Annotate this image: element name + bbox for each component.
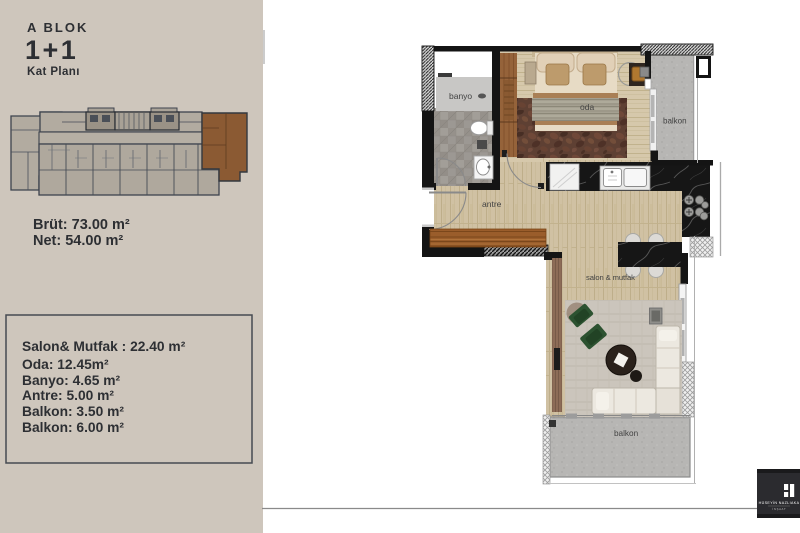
svg-text:Banyo: 4.65 m²: Banyo: 4.65 m² xyxy=(22,373,121,388)
svg-text:antre: antre xyxy=(482,199,502,209)
svg-text:Oda: 12.45m²: Oda: 12.45m² xyxy=(22,357,109,372)
svg-text:Antre: 5.00 m²: Antre: 5.00 m² xyxy=(22,388,114,403)
svg-text:balkon: balkon xyxy=(614,429,639,438)
svg-text:Balkon: 3.50 m²: Balkon: 3.50 m² xyxy=(22,404,124,419)
svg-text:İ N Ş A A T: İ N Ş A A T xyxy=(772,506,786,511)
svg-text:HÜSEYİN NAZLIAKA: HÜSEYİN NAZLIAKA xyxy=(759,500,800,505)
svg-text:Kat Planı: Kat Planı xyxy=(27,66,80,78)
svg-text:banyo: banyo xyxy=(449,91,472,101)
svg-text:A BLOK: A BLOK xyxy=(27,20,88,35)
svg-text:Brüt: 73.00 m²: Brüt: 73.00 m² xyxy=(33,217,130,233)
svg-text:salon & mutfak: salon & mutfak xyxy=(586,273,635,282)
svg-text:Balkon: 6.00 m²: Balkon: 6.00 m² xyxy=(22,420,124,435)
svg-text:oda: oda xyxy=(580,102,594,112)
svg-text:Salon& Mutfak : 22.40 m²: Salon& Mutfak : 22.40 m² xyxy=(22,339,186,354)
svg-text:balkon: balkon xyxy=(663,117,687,126)
svg-text:Net: 54.00 m²: Net: 54.00 m² xyxy=(33,233,123,249)
svg-text:1+1: 1+1 xyxy=(25,35,78,65)
